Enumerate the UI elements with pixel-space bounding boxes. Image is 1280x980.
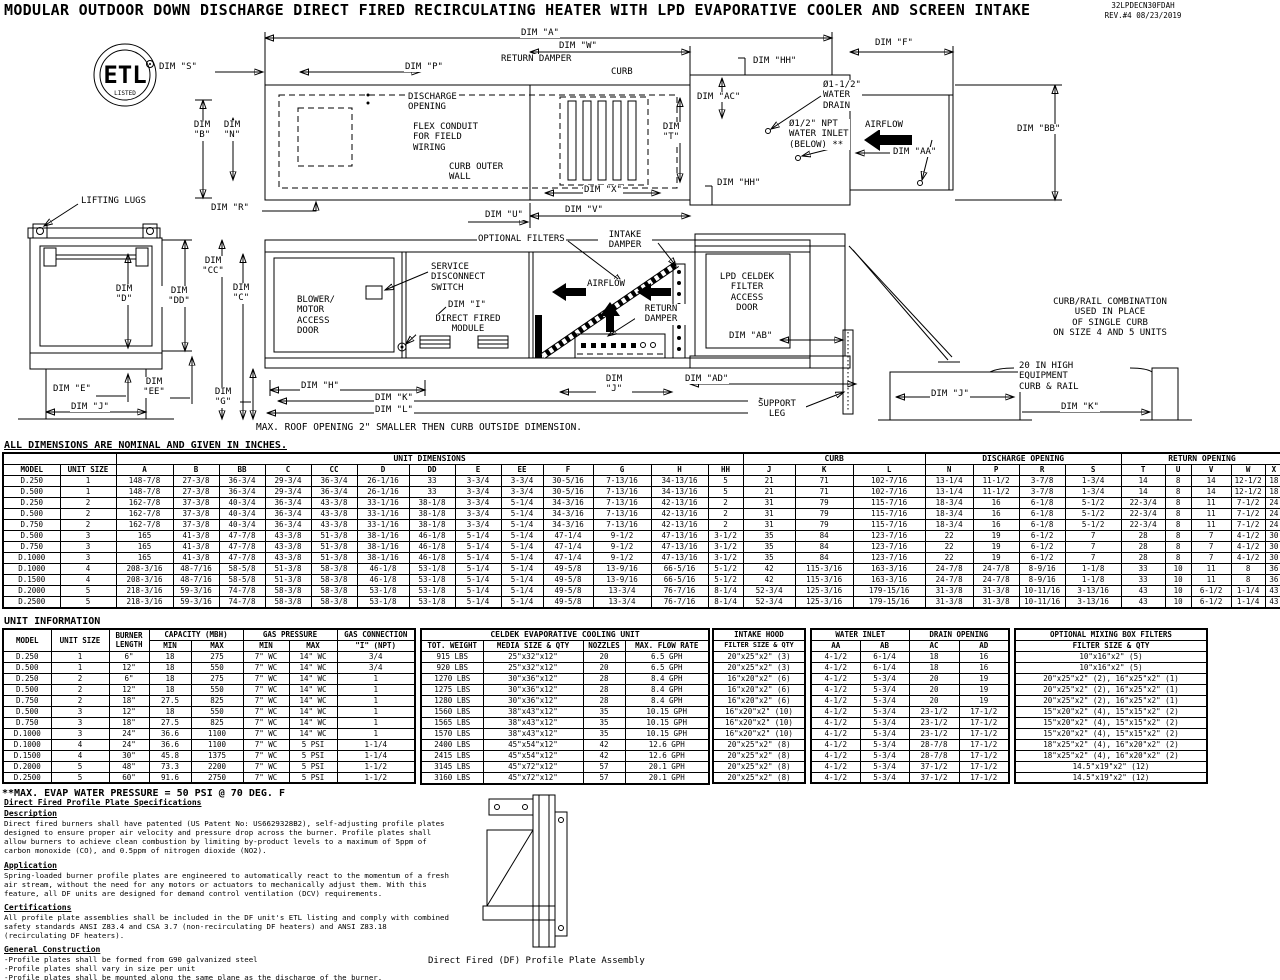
table-cell: 22-3/4 — [1121, 509, 1165, 520]
dim-f-label: DIM "F" — [874, 38, 914, 48]
table-cell: 33-1/16 — [357, 498, 409, 509]
table-cell: 1100 — [191, 739, 243, 750]
table-cell: 9-1/2 — [593, 553, 651, 564]
table-cell: 3-13/16 — [1065, 597, 1121, 608]
table-cell: 2750 — [191, 772, 243, 783]
intake-hood-subtitle-row: FILTER SIZE & QTY — [713, 640, 805, 651]
table-cell: 6" — [109, 651, 149, 662]
table-cell: 42 — [583, 751, 625, 762]
table-cell: 76-7/16 — [651, 597, 708, 608]
table-cell: 29-3/4 — [265, 476, 311, 487]
table-cell: 41-3/8 — [173, 531, 219, 542]
table-cell: 22-3/4 — [1121, 520, 1165, 531]
table-cell: 48-7/16 — [173, 575, 219, 586]
table-cell: 5 — [51, 772, 109, 783]
table-cell: 4-1/2 — [811, 662, 860, 673]
table-cell: 58-5/8 — [219, 575, 265, 586]
water-drain-table: WATER INLET DRAIN OPENING AAABACAD 4-1/2… — [810, 628, 1010, 784]
table-cell: 3-3/4 — [455, 498, 501, 509]
table-cell: 7 — [1065, 531, 1121, 542]
table-row: 16"x20"x2" (10) — [713, 706, 805, 717]
table-cell: 3 — [51, 728, 109, 739]
table-row: D.2500560"91.627507" WC5 PSI1-1/2 — [3, 772, 415, 783]
dim-hh-bottom-label: DIM "HH" — [716, 178, 761, 188]
table-cell: 58-3/8 — [311, 597, 357, 608]
table-cell: 34-3/16 — [543, 498, 593, 509]
table-cell: 51-3/8 — [311, 531, 357, 542]
spec-main-heading: Direct Fired Profile Plate Specification… — [4, 797, 450, 808]
table-cell: 4-1/2 — [811, 673, 860, 684]
table-cell: 16"x20"x2" (10) — [713, 717, 805, 728]
table-row: 15"x20"x2" (4), 15"x15"x2" (2) — [1015, 706, 1207, 717]
table-cell: 1 — [337, 684, 415, 695]
table-cell: D.2500 — [3, 772, 51, 783]
table-cell: 10-11/16 — [1019, 586, 1065, 597]
table-cell: 1 — [60, 487, 116, 498]
table-cell: 27-3/8 — [173, 476, 219, 487]
table-cell: 18-3/4 — [925, 509, 973, 520]
water-drain-header-row: AAABACAD — [811, 640, 1009, 651]
table-cell: 7" WC — [243, 695, 289, 706]
table-cell: 18 — [1265, 487, 1280, 498]
table-cell: 1565 LBS — [421, 718, 483, 729]
table-cell: 51-3/8 — [265, 575, 311, 586]
support-leg-label: SUPPORT LEG — [748, 399, 806, 420]
table-cell: 7" WC — [243, 750, 289, 761]
spec-certifications-heading: Certifications — [4, 902, 450, 913]
column-header: TOT. WEIGHT — [421, 641, 483, 652]
table-cell: 4-1/2 — [1231, 531, 1265, 542]
table-cell: 74-7/8 — [219, 597, 265, 608]
table-cell: 79 — [795, 498, 853, 509]
return-opening-group-header: RETURN OPENING — [1121, 453, 1280, 465]
table-cell: 43 — [1121, 586, 1165, 597]
table-cell: 123-7/16 — [853, 542, 925, 553]
table-cell: 6-1/4 — [860, 651, 909, 662]
table-cell: 5-1/2 — [708, 564, 743, 575]
column-header: EE — [501, 465, 543, 476]
table-cell: 66-5/16 — [651, 564, 708, 575]
table-row: D.15004208-3/1648-7/1658-5/851-3/858-3/8… — [3, 575, 1280, 586]
table-row: 16"x20"x2" (10) — [713, 717, 805, 728]
table-cell: D.1500 — [3, 750, 51, 761]
dim-d-label: DIM "D" — [108, 284, 140, 305]
table-cell: 33-1/16 — [357, 520, 409, 531]
table-cell: 53-1/8 — [409, 597, 455, 608]
table-cell: 3 — [60, 542, 116, 553]
table-cell: 38"x43"x12" — [483, 718, 583, 729]
table-row: D.1500430"45.813757" WC5 PSI1-1/4 — [3, 750, 415, 761]
table-cell: 47-7/8 — [219, 553, 265, 564]
dim-r-label: DIM "R" — [210, 203, 250, 213]
table-cell: 5-1/4 — [501, 586, 543, 597]
lpd-door-label: LPD CELDEK FILTER ACCESS DOOR — [708, 272, 786, 313]
table-cell: 5-1/4 — [501, 531, 543, 542]
table-cell: 14 — [1121, 476, 1165, 487]
table-cell: D.2500 — [3, 597, 60, 608]
dim-l-label: DIM "L" — [374, 405, 414, 415]
mixing-box-subtitle: FILTER SIZE & QTY — [1015, 640, 1207, 651]
table-cell: D.750 — [3, 695, 51, 706]
table-cell: 123-7/16 — [853, 553, 925, 564]
table-row: 20"x25"x2" (3) — [713, 662, 805, 673]
airflow-elev-label: AIRFLOW — [586, 279, 626, 289]
table-row: 20"x25"x2" (2), 16"x25"x2" (1) — [1015, 673, 1207, 684]
table-cell: 36.6 — [149, 739, 191, 750]
table-cell: 45"x54"x12" — [483, 751, 583, 762]
table-cell: 14" WC — [289, 662, 337, 673]
table-cell: 26-1/16 — [357, 476, 409, 487]
table-cell: 5-1/4 — [455, 553, 501, 564]
table-cell: 12.6 GPH — [625, 751, 709, 762]
table-cell: 33 — [409, 476, 455, 487]
return-damper-plan-label: RETURN DAMPER — [500, 54, 572, 64]
table-cell: 16 — [973, 498, 1019, 509]
table-cell: 550 — [191, 706, 243, 717]
table-cell: 43-3/8 — [265, 531, 311, 542]
table-cell: 48" — [109, 761, 149, 772]
table-row: D.750218"27.58257" WC14" WC1 — [3, 695, 415, 706]
unit-size-header: UNIT SIZE — [51, 629, 109, 651]
dim-i-label: DIM "I" — [447, 300, 487, 310]
water-inlet-header: WATER INLET — [811, 629, 909, 640]
table-cell: 16"x20"x2" (10) — [713, 706, 805, 717]
mixing-box-title: OPTIONAL MIXING BOX FILTERS — [1015, 629, 1207, 640]
svg-text:ETL: ETL — [103, 61, 146, 89]
dim-g-label: DIM "G" — [208, 387, 238, 408]
table-cell: 49-5/8 — [543, 597, 593, 608]
table-cell: 6-1/2 — [1019, 531, 1065, 542]
column-header: V — [1191, 465, 1231, 476]
spec-certifications-body: All profile plate assemblies shall be in… — [4, 913, 450, 940]
table-cell: 18 — [149, 706, 191, 717]
table-cell: 6-1/8 — [1019, 509, 1065, 520]
table-cell: 4 — [60, 575, 116, 586]
table-row: D.5001148-7/827-3/836-3/429-3/436-3/426-… — [3, 487, 1280, 498]
table-cell: 5-3/4 — [860, 706, 909, 717]
table-cell: 3-3/4 — [501, 476, 543, 487]
table-cell: 1-1/8 — [1065, 564, 1121, 575]
table-cell: 6" — [109, 673, 149, 684]
table-cell: 17-1/2 — [959, 739, 1009, 750]
table-cell: 275 — [191, 673, 243, 684]
table-cell: 8-9/16 — [1019, 575, 1065, 586]
table-cell: 35 — [583, 718, 625, 729]
table-row: D.1000316541-3/847-7/843-3/851-3/838-1/1… — [3, 553, 1280, 564]
table-row: D.500112"185507" WC14" WC3/4 — [3, 662, 415, 673]
table-row: D.500316541-3/847-7/843-3/851-3/838-1/16… — [3, 531, 1280, 542]
table-cell: 18" — [109, 695, 149, 706]
table-cell: 14" WC — [289, 684, 337, 695]
table-cell: 30" — [109, 750, 149, 761]
table-cell: 5-1/4 — [501, 498, 543, 509]
unit-information-title: UNIT INFORMATION — [4, 616, 100, 627]
table-cell: 34-13/16 — [651, 476, 708, 487]
table-cell: D.1500 — [3, 575, 60, 586]
table-cell: 2400 LBS — [421, 740, 483, 751]
column-header: P — [973, 465, 1019, 476]
table-cell: D.750 — [3, 520, 60, 531]
table-cell: 24" — [109, 728, 149, 739]
table-cell: 20"x25"x2" (2), 16"x25"x2" (1) — [1015, 673, 1207, 684]
table-cell: 28 — [583, 696, 625, 707]
table-cell: 2 — [708, 520, 743, 531]
table-cell: 4-1/2 — [811, 651, 860, 662]
table-cell: 3-7/8 — [1019, 487, 1065, 498]
table-cell: 7" WC — [243, 684, 289, 695]
empty-header-cell — [3, 453, 116, 465]
table-row: D.25005218-3/1659-3/1674-7/858-3/858-3/8… — [3, 597, 1280, 608]
table-cell: 7" WC — [243, 673, 289, 684]
table-cell: 43 — [1265, 586, 1280, 597]
table-cell: 3-3/4 — [455, 520, 501, 531]
table-cell: 37-1/2 — [909, 761, 959, 772]
table-row: D.750318"27.58257" WC14" WC1 — [3, 717, 415, 728]
table-cell: 14" WC — [289, 695, 337, 706]
column-header: R — [1019, 465, 1065, 476]
intake-hood-title-row: INTAKE HOOD — [713, 629, 805, 640]
table-cell: 40-3/4 — [219, 509, 265, 520]
table-cell: 20"x25"x2" (8) — [713, 761, 805, 772]
table-cell: 2 — [60, 520, 116, 531]
table-cell: 46-1/8 — [409, 553, 455, 564]
spec-description-body: Direct fired burners shall have patented… — [4, 819, 450, 855]
table-cell: 4-1/2 — [811, 695, 860, 706]
table-cell: 5-1/4 — [501, 542, 543, 553]
celdek-table: CELDEK EVAPORATIVE COOLING UNIT TOT. WEI… — [420, 628, 710, 785]
table-row: 16"x20"x2" (6) — [713, 684, 805, 695]
table-cell: 6.5 GPH — [625, 663, 709, 674]
column-header: G — [593, 465, 651, 476]
table-cell: 14" WC — [289, 706, 337, 717]
table-cell: 33 — [1121, 564, 1165, 575]
table-cell: 53-1/8 — [409, 575, 455, 586]
table-cell: 43 — [1265, 597, 1280, 608]
table-cell: 115-7/16 — [853, 520, 925, 531]
table-cell: 42 — [743, 564, 795, 575]
table-row: 15"x20"x2" (4), 15"x15"x2" (2) — [1015, 728, 1207, 739]
table-cell: 66-5/16 — [651, 575, 708, 586]
table-cell: 2 — [51, 684, 109, 695]
table-cell: 16 — [973, 509, 1019, 520]
table-cell: 11 — [1191, 520, 1231, 531]
table-cell: 10 — [1165, 575, 1191, 586]
table-cell: 47-7/8 — [219, 531, 265, 542]
table-row: D.2502162-7/837-3/840-3/436-3/443-3/833-… — [3, 498, 1280, 509]
table-cell: 5-1/2 — [1065, 498, 1121, 509]
table-cell: 5-1/4 — [455, 575, 501, 586]
mixing-box-table: OPTIONAL MIXING BOX FILTERS FILTER SIZE … — [1014, 628, 1208, 784]
table-cell: 37-3/8 — [173, 520, 219, 531]
intake-hood-title: INTAKE HOOD — [713, 629, 805, 640]
table-cell: 31 — [743, 509, 795, 520]
table-cell: 148-7/8 — [116, 487, 173, 498]
table-cell: D.750 — [3, 542, 60, 553]
column-header: MEDIA SIZE & QTY — [483, 641, 583, 652]
table-cell: 16"x20"x2" (6) — [713, 695, 805, 706]
dimensions-note: ALL DIMENSIONS ARE NOMINAL AND GIVEN IN … — [4, 440, 287, 451]
table-cell: 73.3 — [149, 761, 191, 772]
table-cell: 179-15/16 — [853, 586, 925, 597]
table-cell: 5-1/4 — [501, 553, 543, 564]
table-cell: 46-1/8 — [409, 542, 455, 553]
table-cell: 49-5/8 — [543, 575, 593, 586]
table-cell: 5-1/2 — [1065, 509, 1121, 520]
table-cell: 58-3/8 — [265, 597, 311, 608]
table-row: 1570 LBS38"x43"x12"3510.15 GPH — [421, 729, 709, 740]
table-cell: 1375 — [191, 750, 243, 761]
table-row: 4-1/25-3/437-1/217-1/2 — [811, 761, 1009, 772]
column-header: D — [357, 465, 409, 476]
table-cell: 22 — [925, 542, 973, 553]
table-cell: 15"x20"x2" (4), 15"x15"x2" (2) — [1015, 717, 1207, 728]
table-cell: 8-1/4 — [708, 597, 743, 608]
dim-e-label: DIM "E" — [52, 384, 92, 394]
table-cell: 24-7/8 — [973, 575, 1019, 586]
dim-cc-label: DIM "CC" — [196, 256, 230, 277]
table-cell: 31 — [743, 498, 795, 509]
table-cell: 7" WC — [243, 717, 289, 728]
table-cell: 20 — [909, 673, 959, 684]
table-cell: 17-1/2 — [959, 750, 1009, 761]
table-cell: 915 LBS — [421, 652, 483, 663]
table-cell: 49-5/8 — [543, 564, 593, 575]
table-cell: 52-3/4 — [743, 586, 795, 597]
table-cell: 24-7/8 — [925, 564, 973, 575]
table-row: D.5002162-7/837-3/840-3/436-3/443-3/833-… — [3, 509, 1280, 520]
table-cell: 5-3/4 — [860, 750, 909, 761]
table-cell: 162-7/8 — [116, 509, 173, 520]
table-cell: 4 — [51, 750, 109, 761]
table-cell: 7-1/2 — [1231, 520, 1265, 531]
table-cell: 47-1/4 — [543, 553, 593, 564]
column-header: CC — [311, 465, 357, 476]
column-header: AB — [860, 640, 909, 651]
table-row: 920 LBS25"x32"x12"206.5 GPH — [421, 663, 709, 674]
table-cell: 5 PSI — [289, 772, 337, 783]
table-cell: 43-3/8 — [311, 520, 357, 531]
table-cell: 4 — [60, 564, 116, 575]
table-cell: 27.5 — [149, 717, 191, 728]
table-cell: 36-3/4 — [219, 476, 265, 487]
column-header: MODEL — [3, 465, 60, 476]
table-cell: 1-1/4 — [337, 739, 415, 750]
table-cell: 36-3/4 — [265, 509, 311, 520]
table-cell: 8 — [1165, 542, 1191, 553]
table-cell: 7-1/2 — [1231, 498, 1265, 509]
curb-group-header: CURB — [743, 453, 925, 465]
table-cell: 7" WC — [243, 772, 289, 783]
model-header: MODEL — [3, 629, 51, 651]
table-cell: 3 — [51, 706, 109, 717]
table-row: D.1000324"36.611007" WC14" WC1 — [3, 728, 415, 739]
lifting-lugs-label: LIFTING LUGS — [80, 196, 147, 206]
table-cell: 16 — [959, 651, 1009, 662]
dim-x-label: DIM "X" — [583, 185, 623, 195]
table-cell: 4-1/2 — [1231, 542, 1265, 553]
table-cell: 3 — [60, 531, 116, 542]
table-cell: 38"x43"x12" — [483, 707, 583, 718]
table-cell: 10.15 GPH — [625, 707, 709, 718]
table-cell: 7-13/16 — [593, 487, 651, 498]
table-cell: 19 — [959, 684, 1009, 695]
table-cell: 20"x25"x2" (3) — [713, 662, 805, 673]
table-cell: 58-3/8 — [311, 575, 357, 586]
column-header: N — [925, 465, 973, 476]
table-cell: 4-1/2 — [811, 761, 860, 772]
table-cell: 14" WC — [289, 717, 337, 728]
table-cell: 19 — [973, 553, 1019, 564]
table-cell: 9-1/2 — [593, 542, 651, 553]
table-cell: 7 — [1191, 542, 1231, 553]
table-row: D.25016"182757" WC14" WC3/4 — [3, 651, 415, 662]
dim-j-end-label: DIM "J" — [70, 402, 110, 412]
gas-max-header: MAX — [289, 640, 337, 651]
table-cell: 46-1/8 — [409, 531, 455, 542]
table-cell: 24-7/8 — [973, 564, 1019, 575]
table-cell: 40-3/4 — [219, 498, 265, 509]
table-cell: 10-11/16 — [1019, 597, 1065, 608]
table-cell: 11 — [1191, 498, 1231, 509]
burner-length-header: BURNER LENGTH — [109, 629, 149, 651]
table-cell: 125-3/16 — [795, 597, 853, 608]
table-cell: 7" WC — [243, 728, 289, 739]
column-header: NOZZLES — [583, 641, 625, 652]
table-cell: 28 — [1121, 531, 1165, 542]
capacity-min-header: MIN — [149, 640, 191, 651]
dim-aa-label: DIM "AA" — [892, 147, 937, 157]
table-cell: 8 — [1165, 531, 1191, 542]
table-row: 1565 LBS38"x43"x12"3510.15 GPH — [421, 718, 709, 729]
table-cell: 59-3/16 — [173, 586, 219, 597]
dim-k-main-label: DIM "K" — [374, 393, 414, 403]
mixing-box-title-row: OPTIONAL MIXING BOX FILTERS — [1015, 629, 1207, 640]
table-cell: 1560 LBS — [421, 707, 483, 718]
table-row: 20"x25"x2" (8) — [713, 750, 805, 761]
blower-door-label: BLOWER/ MOTOR ACCESS DOOR — [296, 295, 336, 336]
doc-number: 32LPDECN30FDAH — [1058, 1, 1228, 11]
column-header: UNIT SIZE — [60, 465, 116, 476]
discharge-opening-group-header: DISCHARGE OPENING — [925, 453, 1121, 465]
table-cell: 6-1/2 — [1191, 586, 1231, 597]
dimension-table: UNIT DIMENSIONS CURB DISCHARGE OPENING R… — [2, 452, 1280, 609]
table-cell: 3145 LBS — [421, 762, 483, 773]
table-cell: 8 — [1165, 498, 1191, 509]
table-cell: 79 — [795, 509, 853, 520]
table-cell: 3-3/4 — [501, 487, 543, 498]
table-cell: 218-3/16 — [116, 586, 173, 597]
table-cell: 36 — [1265, 564, 1280, 575]
table-row: 16"x20"x2" (6) — [713, 695, 805, 706]
table-cell: 8 — [1165, 553, 1191, 564]
capacity-max-header: MAX — [191, 640, 243, 651]
table-cell: 47-13/16 — [651, 542, 708, 553]
table-cell: 163-3/16 — [853, 575, 925, 586]
table-cell: 4-1/2 — [811, 772, 860, 783]
table-cell: 34-13/16 — [651, 487, 708, 498]
table-cell: 36.6 — [149, 728, 191, 739]
table-cell: 14 — [1191, 487, 1231, 498]
table-row: 4-1/25-3/423-1/217-1/2 — [811, 717, 1009, 728]
table-cell: 11 — [1191, 509, 1231, 520]
table-cell: 23-1/2 — [909, 706, 959, 717]
table-cell: 43-3/8 — [311, 509, 357, 520]
table-cell: 19 — [959, 695, 1009, 706]
table-cell: 10 — [1165, 597, 1191, 608]
table-cell: 3-3/4 — [455, 487, 501, 498]
table-cell: 17-1/2 — [959, 717, 1009, 728]
table-cell: 13-3/4 — [593, 586, 651, 597]
